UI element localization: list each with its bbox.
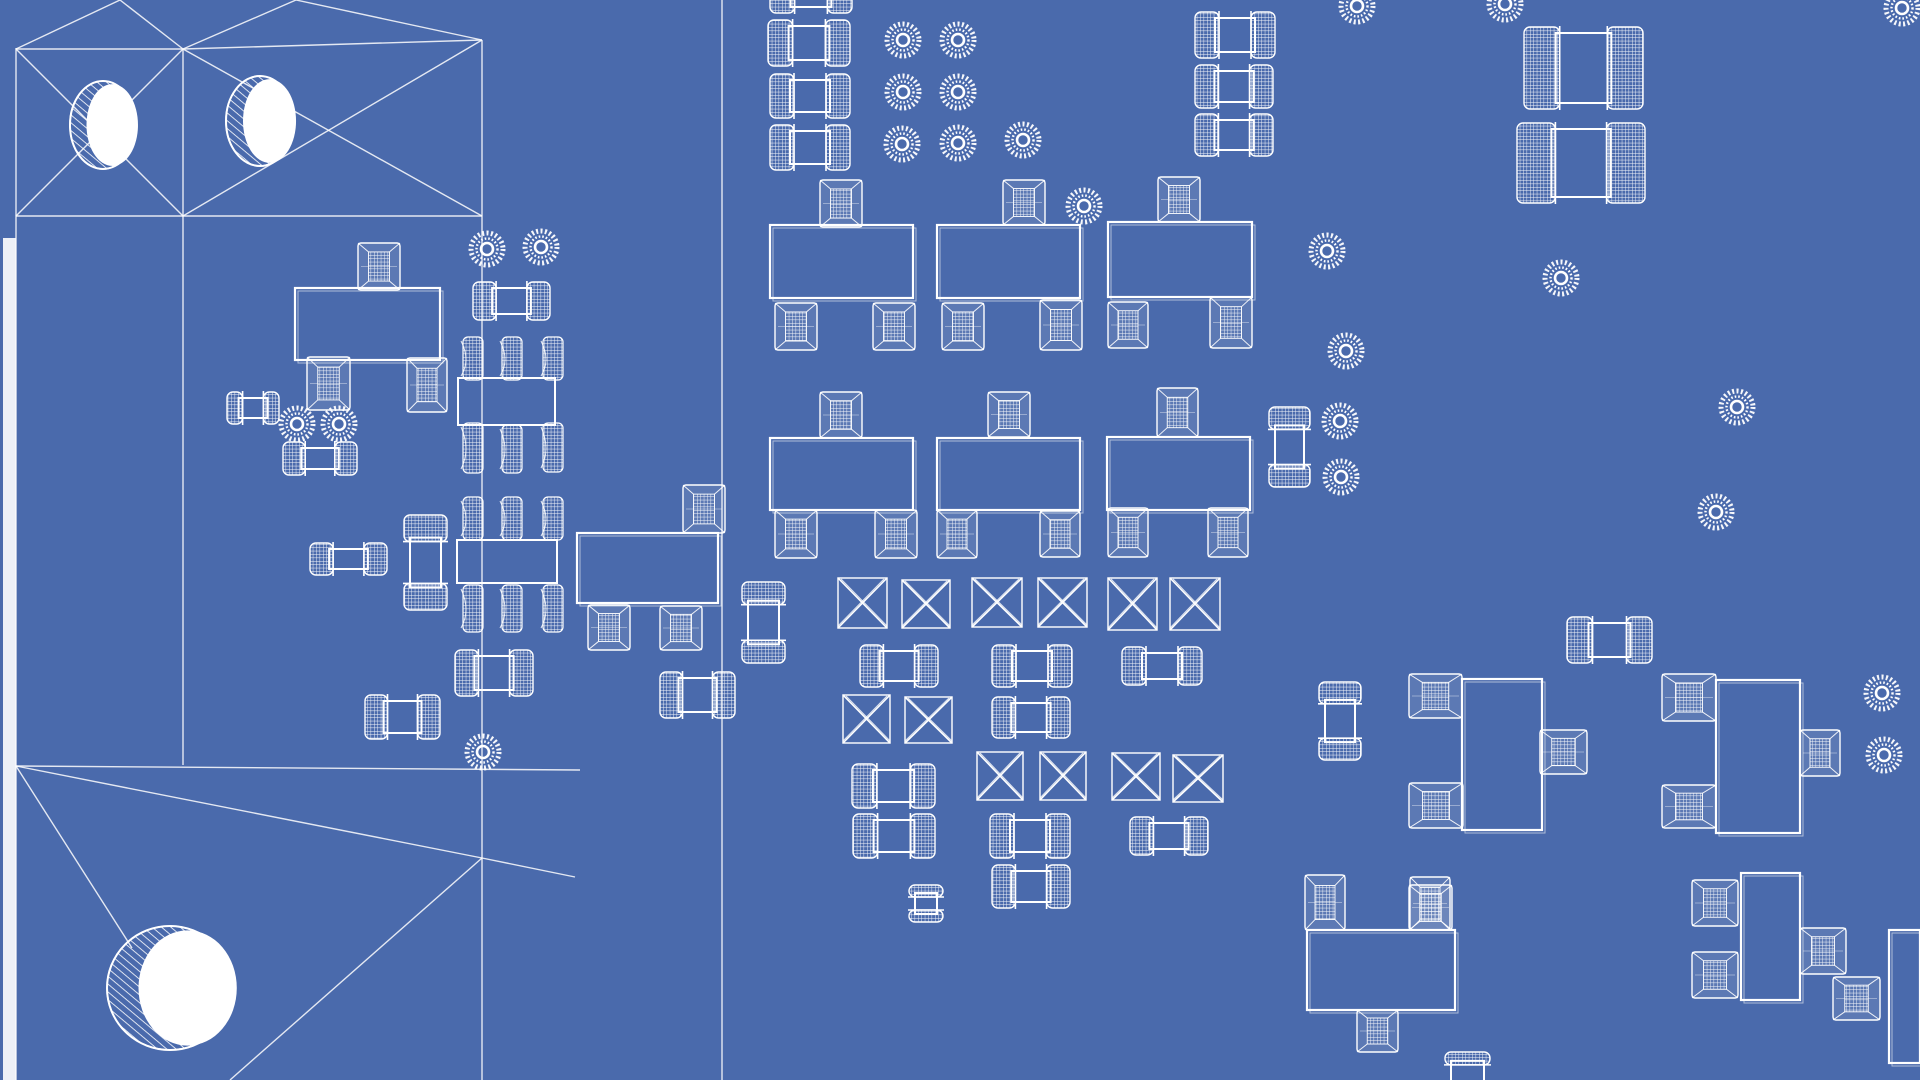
ic6-lead [461, 497, 483, 540]
sot23-body-shadow [940, 228, 1083, 301]
sot23-lead [1210, 297, 1252, 348]
sot23-lead [873, 303, 915, 350]
sot23-lead [1692, 952, 1738, 998]
ic6-lead [500, 585, 522, 632]
sot23-body [577, 533, 718, 603]
via-pad [1311, 235, 1343, 267]
via-pad [323, 408, 355, 440]
sot23-body [1107, 437, 1250, 510]
sot23-body-shadow [1310, 933, 1458, 1013]
board-mesh-line [230, 858, 482, 1080]
via-pad [1324, 405, 1356, 437]
sot23-body [1741, 873, 1800, 1000]
sot23-lead [660, 606, 702, 650]
sot23-lead [1692, 880, 1738, 926]
chip-capacitor-h [990, 813, 1070, 859]
board-mesh-line [482, 858, 575, 877]
board-mesh-line [296, 0, 482, 40]
via-pad [886, 128, 918, 160]
sot23-lead [875, 510, 917, 558]
sot23-body [1108, 222, 1252, 297]
solder-pad-x [905, 697, 952, 743]
ic6-lead [541, 337, 563, 380]
sot23-body-shadow [298, 291, 443, 363]
via-pad [467, 736, 499, 768]
via-pad [1330, 335, 1362, 367]
chip-capacitor-v [1444, 1052, 1491, 1080]
via-pad [1068, 190, 1100, 222]
solder-pad-x [1040, 752, 1086, 800]
chip-capacitor-h [310, 542, 387, 576]
electrolytic-capacitor [70, 81, 138, 169]
solder-pad-x [1112, 753, 1160, 800]
sot23-lead [1409, 783, 1463, 828]
sot23-lead [1158, 177, 1200, 222]
sot23-lead [588, 605, 630, 650]
sot23-package [1409, 674, 1587, 833]
sot23-lead [937, 510, 977, 558]
sot23-lead [1800, 730, 1840, 776]
sot23-body-shadow [1744, 876, 1803, 1003]
chip-capacitor-h [473, 281, 550, 321]
via-pad [1489, 0, 1521, 20]
sot23-lead [1662, 674, 1716, 721]
sot23-lead [775, 510, 817, 558]
board-edge-band [3, 238, 16, 1080]
sot23-package [770, 180, 916, 350]
via-pad [525, 231, 557, 263]
sot23-body [770, 438, 913, 510]
board-mesh-line [16, 766, 580, 770]
chip-capacitor-h [1122, 646, 1202, 686]
sot23-package [577, 485, 725, 650]
chip-capacitor-h [992, 696, 1070, 739]
sot23-lead [407, 358, 447, 412]
sot23-body-shadow [1465, 682, 1545, 833]
via-pad [887, 24, 919, 56]
via-pad [1341, 0, 1373, 22]
chip-capacitor-h [1195, 113, 1273, 157]
board-mesh-line [183, 40, 482, 49]
ic6-lead [500, 337, 522, 380]
chip-capacitor-h [992, 864, 1070, 909]
sot23-package [1107, 388, 1253, 557]
sot23-lead [1108, 302, 1148, 348]
solder-pad-x [838, 578, 887, 628]
ic6-lead [541, 423, 563, 472]
sot23-body [295, 288, 440, 360]
via-pad [1700, 496, 1732, 528]
sot23-lead [1108, 508, 1148, 557]
chip-capacitor-h [455, 649, 533, 697]
sot23-lead [820, 180, 862, 227]
via-pad [1886, 0, 1918, 24]
sot23-lead [1040, 511, 1080, 557]
chip-capacitor-h [1195, 11, 1275, 59]
ic6-lead [461, 585, 483, 632]
board-mesh-line [16, 0, 120, 49]
ic6-lead [541, 497, 563, 540]
chip-capacitor-h [992, 644, 1072, 688]
via-pad [887, 76, 919, 108]
ic6-lead [500, 497, 522, 540]
sot23-lead [1540, 730, 1587, 774]
sot23-lead [307, 357, 350, 410]
chip-capacitor-h [365, 694, 440, 740]
solo-lead [1409, 885, 1452, 930]
sot23-lead [1305, 875, 1345, 930]
chip-capacitor-h [1130, 816, 1208, 856]
chip-capacitor-h [852, 763, 935, 809]
sot23-lead [1833, 977, 1880, 1020]
sot23-body-shadow [773, 228, 916, 301]
solder-pad-x [977, 752, 1023, 800]
sot23-package [1662, 674, 1840, 836]
via-pad [942, 127, 974, 159]
solder-pad-x [972, 578, 1022, 627]
via-pad [1868, 739, 1900, 771]
sot23-lead [1800, 928, 1846, 974]
sot23-body [1307, 930, 1455, 1010]
solder-pad-x [843, 695, 890, 743]
sot23-lead [1409, 674, 1462, 718]
via-pad [1866, 677, 1898, 709]
sot23-lead [1157, 388, 1198, 437]
via-pad [942, 76, 974, 108]
via-pad [281, 408, 313, 440]
sot23-body-shadow [580, 536, 721, 606]
board-mesh-line [120, 0, 183, 49]
ic6-package [458, 337, 563, 473]
sot23-body [937, 225, 1080, 298]
sot23-body-shadow [1719, 683, 1803, 836]
solder-pad-x [1038, 578, 1087, 627]
chip-capacitor-v [741, 582, 786, 663]
blueprint-canvas [0, 0, 1920, 1080]
sot23-package [1108, 177, 1255, 348]
chip-capacitor-h [1195, 64, 1273, 109]
sot23-lead [1662, 785, 1716, 828]
sot23-body [1462, 679, 1542, 830]
sot23-lead [1357, 1010, 1398, 1052]
via-pad [1721, 391, 1753, 423]
via-pad [471, 233, 503, 265]
board-mesh-line [16, 766, 482, 858]
sot23-body-shadow [1111, 225, 1255, 300]
sot23-body-shadow [1110, 440, 1253, 513]
sot23-lead [1208, 508, 1248, 557]
via-pad [1325, 461, 1357, 493]
ic6-package [457, 497, 563, 632]
ic6-body [458, 378, 555, 425]
sot23-lead [1003, 180, 1045, 225]
board-mesh-line [16, 766, 132, 948]
ic6-lead [461, 423, 483, 473]
solder-pad-x [1108, 578, 1157, 630]
chip-capacitor-h [768, 19, 850, 67]
sot23-lead [683, 485, 725, 533]
sot23-body-shadow [1892, 933, 1920, 1066]
chip-capacitor-h [660, 671, 735, 719]
solder-pad-x [1173, 755, 1223, 802]
sot23-lead [988, 392, 1030, 437]
sot23-lead [1040, 300, 1082, 350]
chip-capacitor-h [1517, 122, 1645, 204]
sot23-package [1692, 873, 1846, 1003]
sot23-body-shadow [940, 441, 1083, 513]
chip-capacitor-v [1318, 682, 1362, 760]
solder-pad-x [1170, 578, 1220, 630]
ic6-lead [541, 585, 563, 632]
sot23-package [937, 180, 1083, 350]
blueprint-scene [0, 0, 1920, 1080]
sot23-package [295, 243, 447, 412]
mounting-hole [107, 926, 237, 1050]
solder-pad-x [902, 580, 950, 628]
sot23-package [937, 392, 1083, 558]
via-pad [942, 24, 974, 56]
sot23-body [1889, 930, 1920, 1063]
chip-capacitor-h [853, 813, 935, 859]
chip-capacitor-v [908, 885, 944, 922]
chip-capacitor-h [1567, 616, 1652, 664]
chip-capacitor-h [770, 73, 850, 119]
sot23-lead [942, 303, 984, 350]
ic6-lead [500, 425, 522, 473]
chip-capacitor-h [227, 391, 279, 425]
chip-capacitor-v [1268, 407, 1311, 487]
board-mesh-line [183, 0, 296, 49]
sot23-body [770, 225, 913, 298]
sot23-body [1716, 680, 1800, 833]
via-pad [1007, 124, 1039, 156]
chip-capacitor-h [283, 441, 357, 476]
chip-capacitor-h [770, 0, 852, 14]
sot23-lead [358, 243, 400, 290]
electrolytic-capacitor [226, 76, 296, 166]
sot23-lead [820, 392, 862, 438]
chip-capacitor-h [770, 124, 850, 171]
ic6-lead [461, 337, 483, 380]
chip-capacitor-h [860, 644, 938, 688]
chip-capacitor-v [403, 515, 448, 610]
ic6-body [457, 540, 557, 583]
sot23-package [770, 392, 917, 558]
chip-capacitor-h [1524, 26, 1643, 110]
sot23-lead [775, 303, 817, 350]
via-pad [1545, 262, 1577, 294]
sot23-body-shadow [773, 441, 916, 513]
sot23-body [937, 438, 1080, 510]
